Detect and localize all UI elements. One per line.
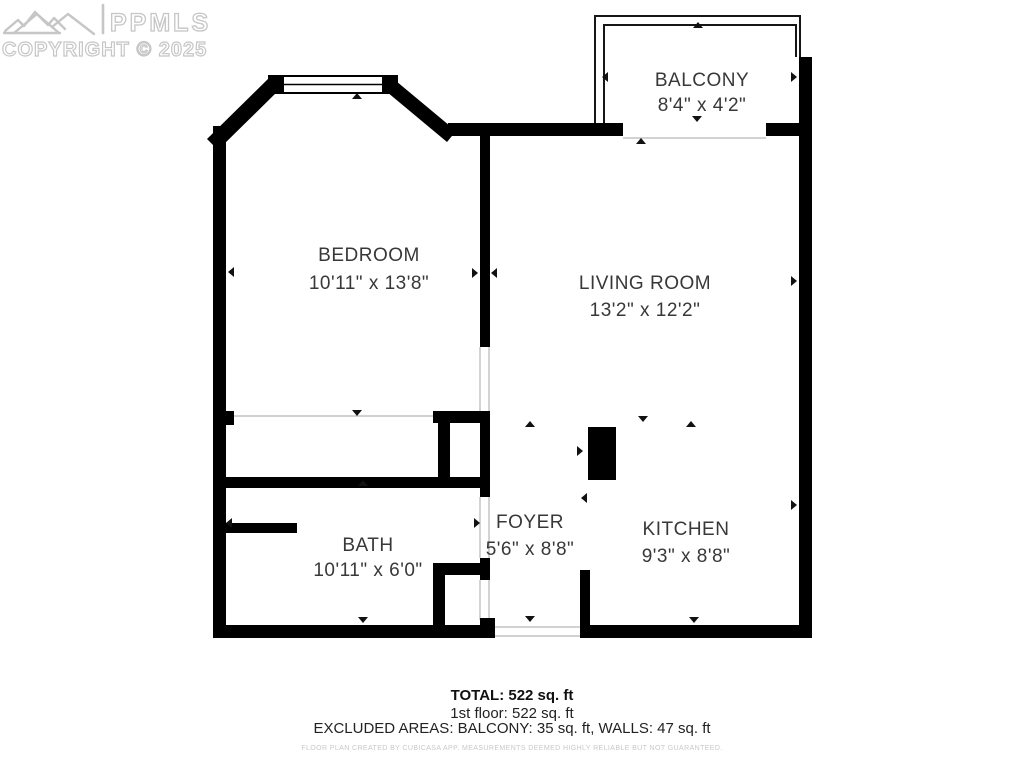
room-dims-bedroom: 10'11" x 13'8" [309, 273, 429, 294]
room-dims-kitchen: 9'3" x 8'8" [642, 546, 731, 567]
wall-closet-left [438, 423, 450, 477]
room-label-living-room: LIVING ROOM [579, 273, 711, 294]
area-summary: TOTAL: 522 sq. ft 1st floor: 522 sq. ft … [301, 687, 722, 752]
room-dims-living-room: 13'2" x 12'2" [590, 300, 701, 321]
watermark-brand: PPMLS [110, 9, 211, 37]
bedroom-window [269, 76, 397, 93]
total-area-text: TOTAL: 522 sq. ft [451, 687, 574, 704]
wall-left [213, 126, 226, 638]
wall-top-living-left [448, 123, 623, 136]
room-label-kitchen: KITCHEN [643, 519, 730, 540]
room-label-bedroom: BEDROOM [318, 245, 420, 266]
room-label-bath: BATH [342, 535, 393, 556]
ppmls-watermark: PPMLS COPYRIGHT © 2025 [2, 5, 211, 61]
wall-top-living-right [766, 123, 812, 136]
watermark-copyright: COPYRIGHT © 2025 [2, 39, 207, 61]
room-dims-foyer: 5'6" x 8'8" [486, 539, 575, 560]
room-dims-balcony: 8'4" x 4'2" [658, 95, 747, 116]
wall-bath-half [226, 523, 297, 533]
utility-fixture [588, 427, 616, 480]
excluded-areas-text: EXCLUDED AREAS: BALCONY: 35 sq. ft, WALL… [313, 720, 711, 737]
floor-plan-page: PPMLS COPYRIGHT © 2025 [0, 0, 1024, 767]
room-dims-bath: 10'11" x 6'0" [313, 560, 422, 581]
wall-bath-top [213, 477, 490, 488]
wall-bath-closet-left [433, 575, 445, 638]
wall-entry-stub [480, 618, 495, 638]
wall-kitchen-foyer-divider [580, 570, 590, 638]
wall-left-stub [226, 411, 234, 425]
floor-plan: PPMLS COPYRIGHT © 2025 [0, 0, 1024, 767]
wall-bottom-left [213, 625, 495, 638]
wall-bath-closet-top [433, 563, 490, 575]
wall-bottom-right [580, 625, 812, 638]
wall-bedroom-living-divider [480, 135, 490, 347]
wall-right [799, 57, 812, 638]
wall-closet-top [433, 411, 490, 423]
disclaimer-text: FLOOR PLAN CREATED BY CUBICASA APP. MEAS… [301, 745, 722, 752]
room-labels: BALCONY 8'4" x 4'2" BEDROOM 10'11" x 13'… [309, 70, 749, 581]
mountain-logo-icon [4, 5, 103, 34]
room-label-balcony: BALCONY [655, 70, 749, 91]
room-label-foyer: FOYER [496, 512, 564, 533]
